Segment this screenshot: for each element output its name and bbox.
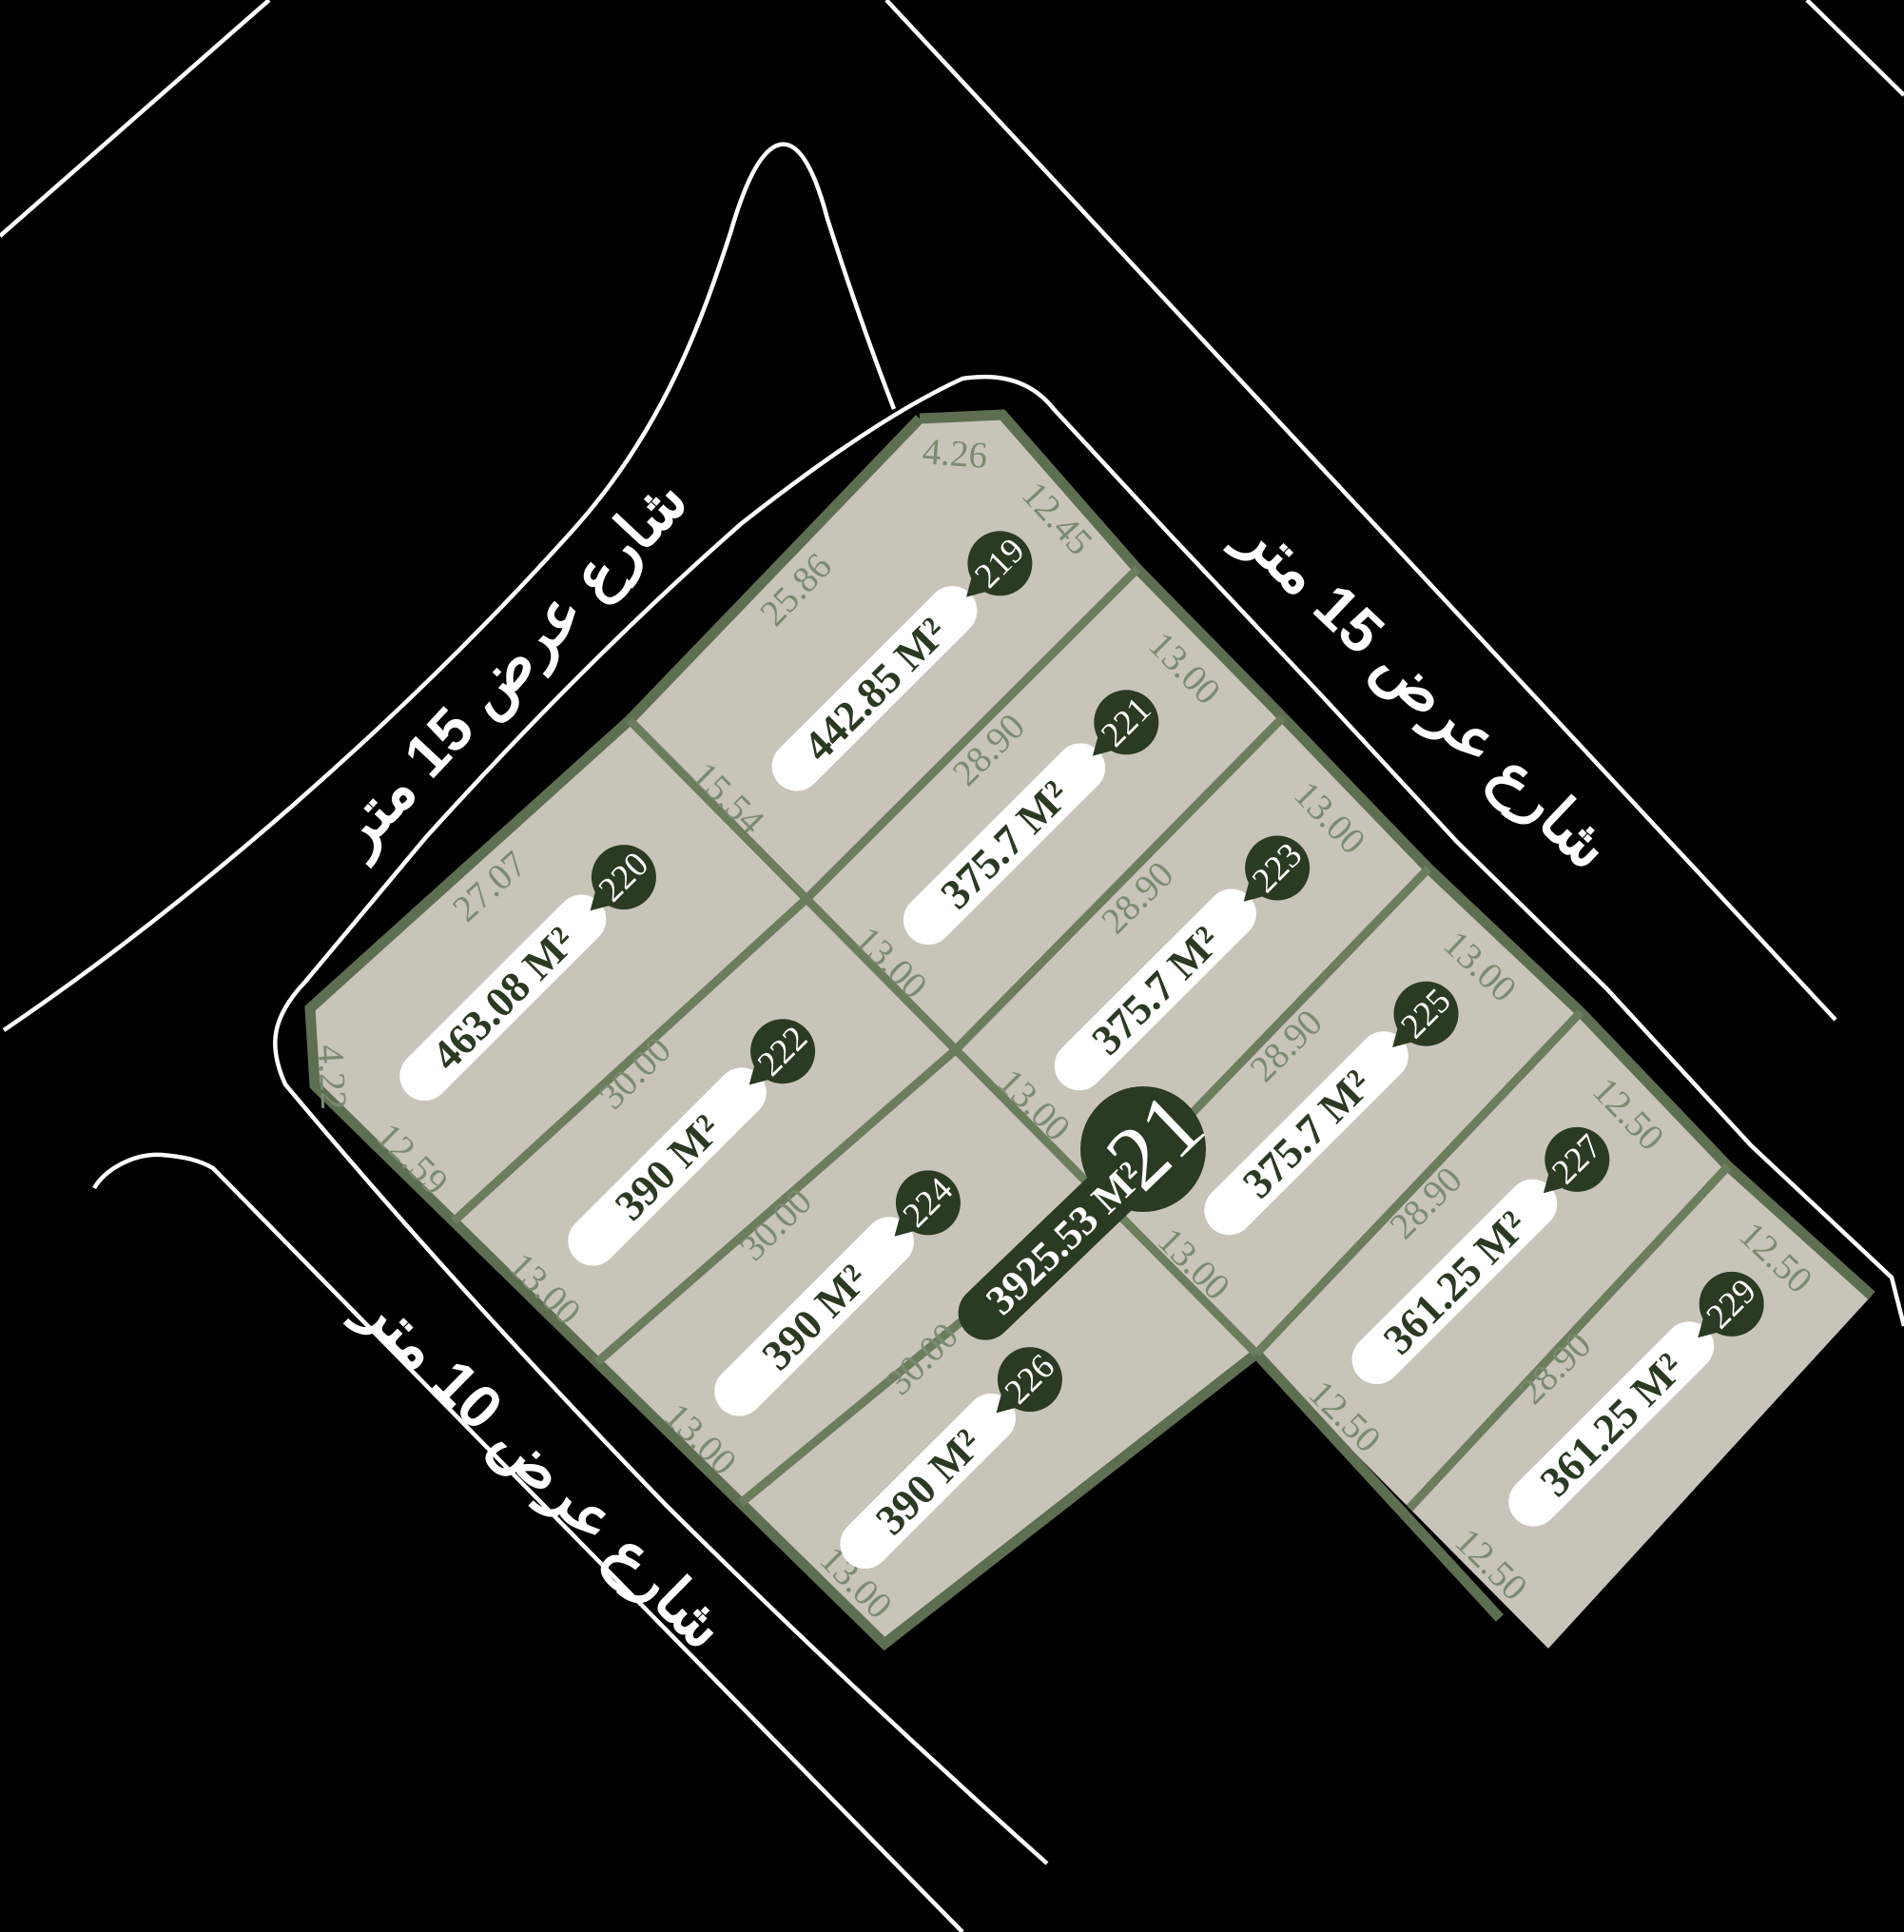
svg-text:4.26: 4.26 xyxy=(921,431,988,477)
svg-text:4.22: 4.22 xyxy=(309,1044,354,1111)
